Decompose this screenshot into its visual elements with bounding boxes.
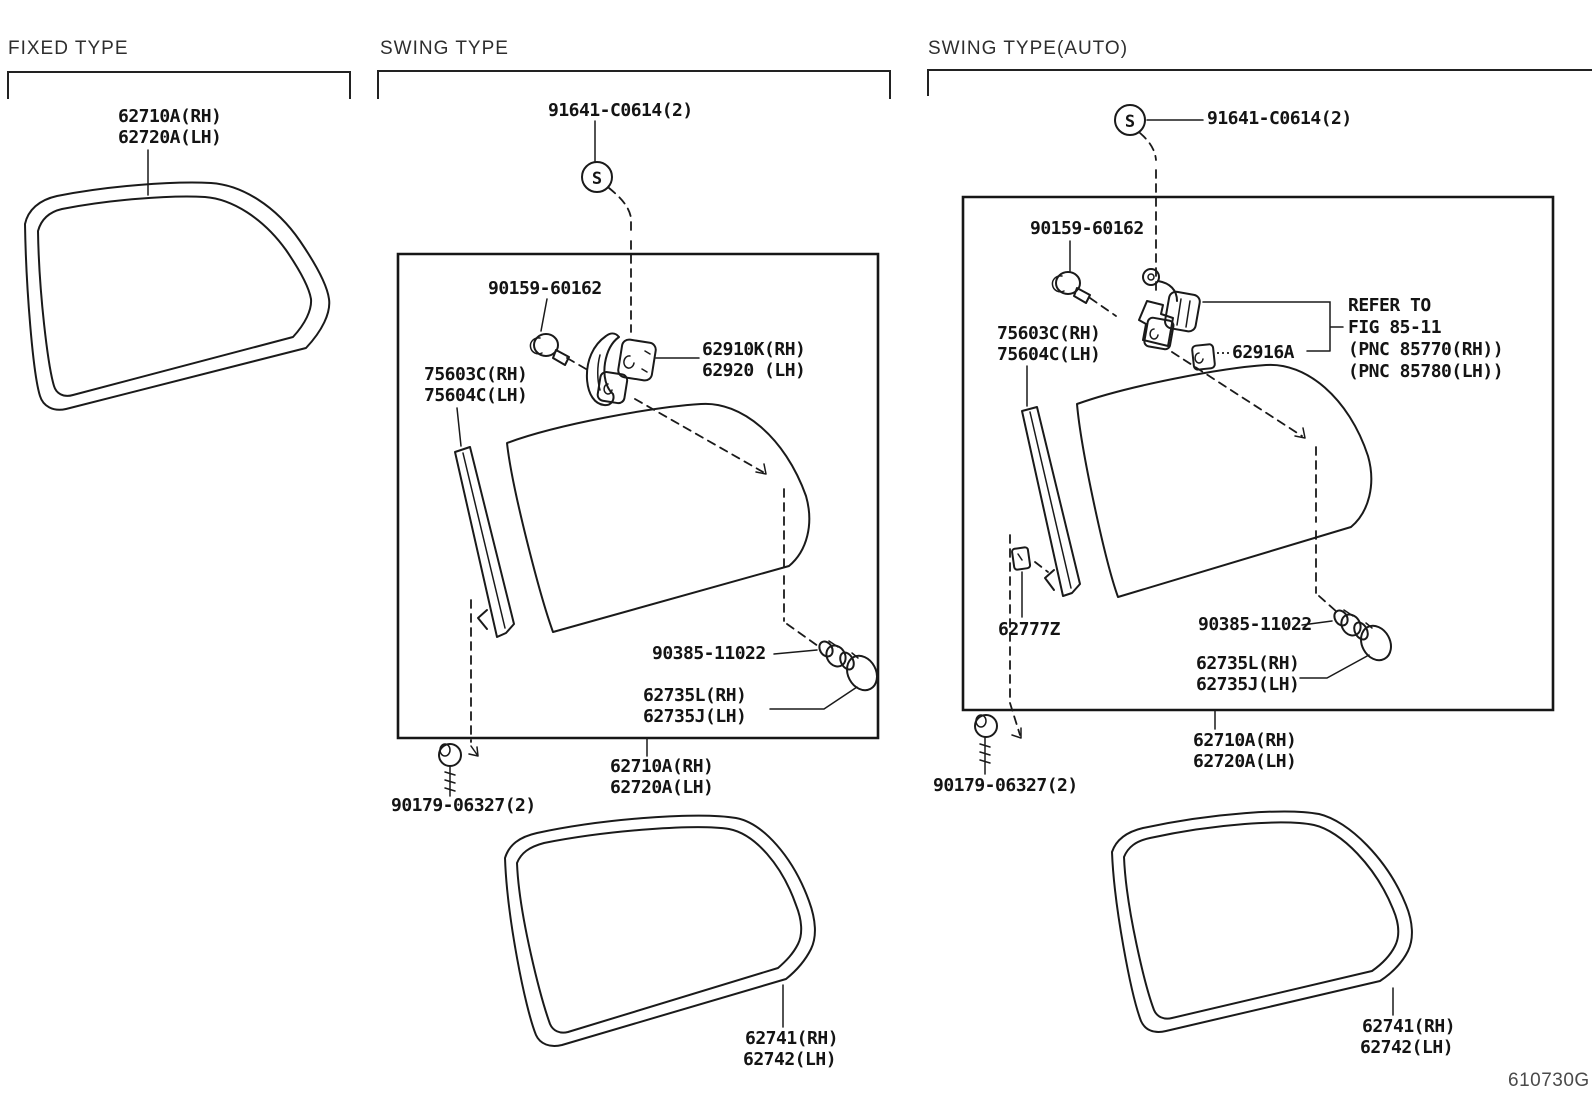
swing-auto-glass	[1077, 365, 1371, 597]
section-title-fixed: FIXED TYPE	[8, 38, 129, 60]
label-swing-hinge-lh: 62920 (LH)	[702, 361, 805, 381]
label-swing-auto-seal-rh: 62741(RH)	[1362, 1017, 1455, 1037]
swing-auto-hinge-actuator-icon	[1139, 269, 1201, 350]
label-swing-auto-weatherstrip-lh: 62720A(LH)	[1193, 752, 1296, 772]
parts-diagram-page: S S FIXED TYPE SWING TYPE SWING TYPE(AUT…	[0, 0, 1592, 1099]
label-fixed-weatherstrip-lh: 62720A(LH)	[118, 128, 221, 148]
label-swing-seal-rh: 62741(RH)	[745, 1029, 838, 1049]
label-swing-set-screw: 91641-C0614(2)	[548, 101, 693, 121]
swing-auto-section-art	[928, 70, 1592, 1032]
swing-auto-clip-icon	[1012, 547, 1031, 570]
label-swing-auto-clip: 62777Z	[998, 620, 1060, 640]
swing-seal-drawing	[505, 816, 815, 1046]
label-swing-plug-lh: 62735J(LH)	[643, 707, 746, 727]
swing-hinge-icon	[587, 334, 657, 406]
swing-plug-icon	[837, 650, 882, 695]
label-swing-auto-weatherstrip-rh: 62710A(RH)	[1193, 731, 1296, 751]
swing-bolt-icon	[530, 334, 569, 365]
fixed-weatherstrip-drawing	[25, 183, 329, 410]
label-swing-grommet: 90385-11022	[652, 644, 766, 664]
label-refer-line4: (PNC 85780(LH))	[1348, 362, 1503, 382]
label-swing-auto-lock: 62916A	[1232, 343, 1294, 363]
label-swing-auto-grommet: 90385-11022	[1198, 615, 1312, 635]
swing-auto-seal-drawing	[1112, 812, 1412, 1032]
label-swing-garnish-rh: 75603C(RH)	[424, 365, 527, 385]
swing-auto-screw-icon	[975, 715, 997, 774]
diagram-line-art: S S	[0, 0, 1592, 1099]
label-swing-garnish-lh: 75604C(LH)	[424, 386, 527, 406]
fixed-bracket	[8, 72, 350, 99]
swing-auto-garnish-strip	[1022, 407, 1080, 596]
label-swing-auto-seal-lh: 62742(LH)	[1360, 1038, 1453, 1058]
label-swing-auto-set-screw: 91641-C0614(2)	[1207, 109, 1352, 129]
swing-screw-icon	[439, 744, 461, 796]
swing-s-letter: S	[592, 169, 602, 189]
label-swing-plug-rh: 62735L(RH)	[643, 686, 746, 706]
figure-code: 610730G	[1508, 1070, 1590, 1092]
swing-auto-plug-icon	[1351, 620, 1396, 665]
swing-bracket	[378, 71, 890, 99]
label-fixed-weatherstrip-rh: 62710A(RH)	[118, 107, 221, 127]
label-swing-seal-lh: 62742(LH)	[743, 1050, 836, 1070]
section-title-swing: SWING TYPE	[380, 38, 509, 60]
label-swing-bolt: 90159-60162	[488, 279, 602, 299]
swing-section-art	[378, 71, 890, 1046]
label-swing-weatherstrip-lh: 62720A(LH)	[610, 778, 713, 798]
label-swing-auto-screw: 90179-06327(2)	[933, 776, 1078, 796]
swing-auto-lock-icon	[1192, 344, 1215, 370]
label-swing-auto-plug-rh: 62735L(RH)	[1196, 654, 1299, 674]
label-swing-auto-bolt: 90159-60162	[1030, 219, 1144, 239]
swing-glass	[507, 404, 809, 632]
swing-garnish-strip	[455, 447, 514, 637]
label-swing-auto-plug-lh: 62735J(LH)	[1196, 675, 1299, 695]
label-refer-line3: (PNC 85770(RH))	[1348, 340, 1503, 360]
swing-auto-s-letter: S	[1125, 112, 1135, 132]
section-title-swing-auto: SWING TYPE(AUTO)	[928, 38, 1128, 60]
label-swing-hinge-rh: 62910K(RH)	[702, 340, 805, 360]
swing-grommet-icon	[817, 639, 850, 670]
swing-auto-bracket	[928, 70, 1592, 96]
label-refer-line2: FIG 85-11	[1348, 318, 1441, 338]
label-swing-screw: 90179-06327(2)	[391, 796, 536, 816]
label-swing-weatherstrip-rh: 62710A(RH)	[610, 757, 713, 777]
label-swing-auto-garnish-rh: 75603C(RH)	[997, 324, 1100, 344]
label-swing-auto-garnish-lh: 75604C(LH)	[997, 345, 1100, 365]
swing-auto-bolt-icon	[1052, 272, 1090, 303]
label-refer-line1: REFER TO	[1348, 296, 1431, 316]
